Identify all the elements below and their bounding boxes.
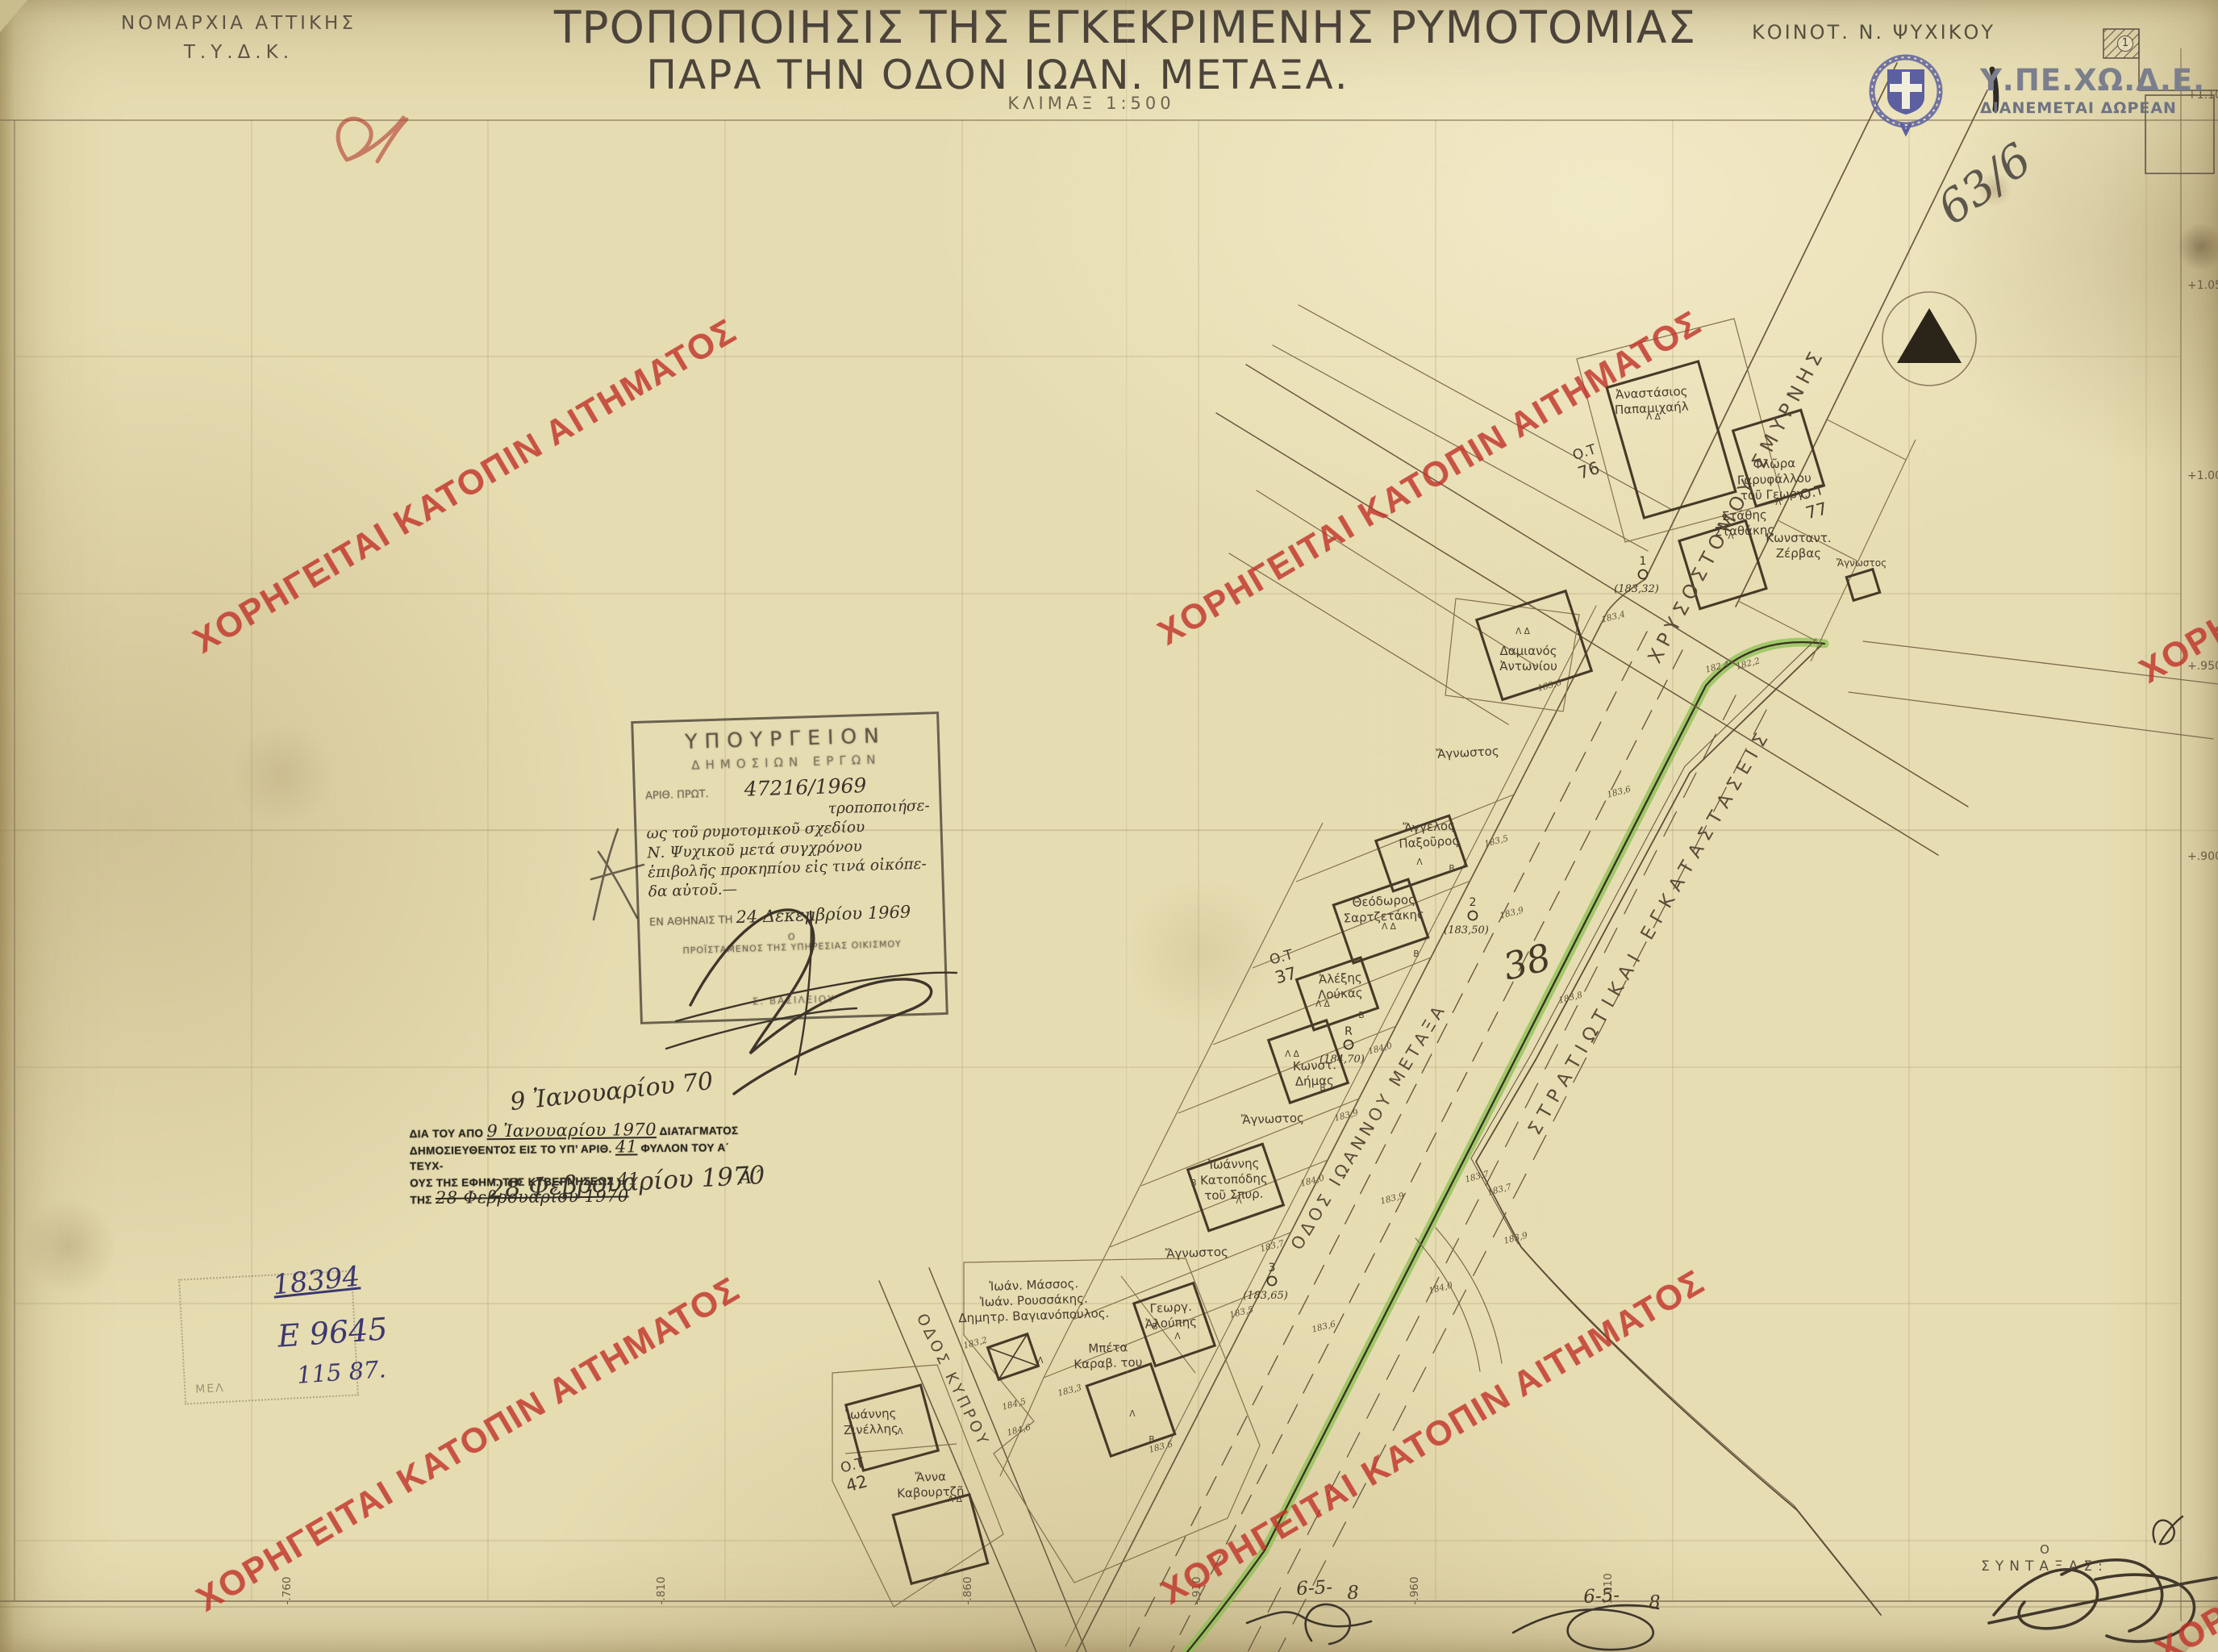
parcel-owner-label: Δαμιανός bbox=[1499, 644, 1557, 658]
survey-point-elevation: (183,50) bbox=[1444, 924, 1489, 937]
parcel-owner-label: Δήμας bbox=[1295, 1073, 1335, 1089]
block-76-boundaries bbox=[1229, 490, 1536, 724]
axis-tick-right: +.900 bbox=[2187, 850, 2218, 863]
parcel-owner-label: Μπέτα bbox=[1088, 1340, 1128, 1356]
parcel-owner-label: Παξοῦρος bbox=[1399, 833, 1460, 851]
construction-mark: Λ Δ bbox=[1382, 922, 1397, 932]
construction-mark: Β bbox=[1190, 1179, 1196, 1188]
bottom-signature-2 bbox=[1513, 1605, 1658, 1650]
axis-tick-bottom: -.860 bbox=[961, 1577, 974, 1605]
parcel-owner-label: Στάθης bbox=[1722, 507, 1767, 524]
handwritten-annotation: 8 bbox=[1649, 1592, 1661, 1614]
spot-elevation: 183,5 bbox=[1483, 833, 1509, 849]
survey-point-marker bbox=[1469, 912, 1478, 920]
survey-point-number: 2 bbox=[1470, 896, 1477, 909]
handwritten-annotation: 6-5- bbox=[1296, 1577, 1333, 1600]
parcel-owner-label: Ζινέλλης bbox=[844, 1421, 898, 1437]
survey-point-number: 1 bbox=[1640, 555, 1647, 568]
axis-tick-bottom: -.910 bbox=[1190, 1577, 1203, 1605]
east-side-road bbox=[1849, 641, 2218, 739]
spot-elevation: 184,0 bbox=[1428, 1280, 1453, 1295]
road-metaxa-smyrnis-west-edge bbox=[1077, 63, 1897, 1652]
handwritten-one-over-logo bbox=[1992, 69, 1996, 110]
survey-point-elevation: (184,70) bbox=[1320, 1053, 1365, 1066]
axis-tick-right: +1.000 bbox=[2187, 469, 2218, 482]
spot-elevation: 183,8 bbox=[1557, 990, 1583, 1005]
parcel-owner-label: Καραβ. του bbox=[1074, 1355, 1143, 1372]
survey-point-elevation: (183,32) bbox=[1614, 583, 1659, 595]
spot-elevation: 183,4 bbox=[1600, 609, 1626, 624]
spot-elevation: 183,6 bbox=[1536, 678, 1562, 693]
handwritten-annotation: 8 bbox=[1347, 1583, 1360, 1604]
spot-elevation: 184,0 bbox=[1367, 1041, 1393, 1056]
axis-tick-bottom: -.960 bbox=[1408, 1577, 1421, 1605]
parcel-owner-label: Ἄγνωστος bbox=[1241, 1111, 1304, 1128]
construction-mark: Λ bbox=[1416, 857, 1423, 867]
spot-elevation: 183,6 bbox=[1606, 784, 1632, 799]
map-canvas: +1.100+1.050+1.000+.950+.900-.760-.810-.… bbox=[0, 0, 2218, 1652]
survey-point-marker bbox=[1268, 1277, 1277, 1286]
spot-elevation: 183,6 bbox=[1311, 1319, 1336, 1334]
handwritten-annotation: 38 bbox=[1499, 935, 1555, 989]
construction-mark: Λ bbox=[1037, 1356, 1044, 1366]
bottom-signature-1 bbox=[1247, 1604, 1371, 1644]
construction-mark: Λ Δ bbox=[1285, 1049, 1300, 1059]
parcel-owner-label: Ἀλέξης bbox=[1318, 970, 1362, 987]
parcel-owner-label: Ἰωάν. Μάσσος. bbox=[989, 1276, 1078, 1294]
construction-mark: Β bbox=[1413, 949, 1419, 959]
road-kyprou-edges bbox=[879, 1268, 1086, 1652]
parcel-owner-label: Ἰωάννης bbox=[845, 1406, 897, 1422]
construction-mark: Β bbox=[1449, 864, 1454, 874]
west-chain-rear-boundary bbox=[1000, 823, 1323, 1476]
construction-mark: Β bbox=[1149, 1435, 1154, 1445]
parcel-owner-label: τοῦ Σπυρ. bbox=[1204, 1187, 1264, 1204]
pencil-cross-mark bbox=[591, 829, 644, 920]
curved-boundary-arcs bbox=[1415, 1228, 1502, 1371]
spot-elevation: 183,5 bbox=[1228, 1304, 1254, 1320]
construction-mark: Λ bbox=[897, 1427, 903, 1437]
construction-mark: Λ bbox=[1775, 498, 1782, 507]
upper-street-pair bbox=[1273, 305, 1674, 551]
cross-street-south-edge bbox=[1216, 413, 1938, 855]
street-name-label: ΟΔΟΣ ΚΥΠΡΟΥ bbox=[913, 1311, 993, 1450]
axis-tick-right: +.950 bbox=[2187, 660, 2218, 673]
parcel-owner-label: Ζέρβας bbox=[1776, 546, 1821, 561]
street-name-label: ΟΔΟΣ ΙΩΑΝΝΟΥ ΜΕΤΑΞΑ bbox=[1287, 999, 1450, 1254]
parcel-owner-label: Ἰωάννης bbox=[1208, 1156, 1260, 1172]
construction-mark: Β bbox=[1152, 1322, 1157, 1332]
parcel-owner-label: Ἀντωνίου bbox=[1499, 659, 1557, 674]
construction-mark: Β bbox=[1358, 1011, 1364, 1020]
construction-mark: Λ bbox=[1728, 532, 1734, 541]
construction-mark: Λ Δ bbox=[1646, 412, 1661, 422]
parcel-owner-label: Ἄγνωστος bbox=[1837, 557, 1887, 569]
spot-elevation: 184,6 bbox=[1006, 1422, 1032, 1437]
road-metaxa-centerline-dashed-2 bbox=[1171, 650, 1682, 1652]
spot-elevation: 183,9 bbox=[1379, 1191, 1405, 1206]
coat-of-arms-emblem bbox=[1872, 57, 1940, 133]
north-arrow bbox=[1882, 292, 1976, 386]
building-footprint bbox=[893, 1495, 987, 1583]
spot-elevation: 183,9 bbox=[1503, 1230, 1528, 1245]
sheet-frame bbox=[0, 48, 2218, 1621]
handwritten-annotation: 6-5- bbox=[1583, 1585, 1620, 1608]
survey-point-number: R bbox=[1345, 1025, 1353, 1038]
small-initial-scribble bbox=[2153, 1516, 2183, 1544]
construction-mark: Λ Δ bbox=[1515, 627, 1531, 636]
parcel-owner-label: Ἄννα bbox=[915, 1469, 946, 1484]
parcel-owner-label: Γαρυφάλλου bbox=[1737, 470, 1812, 487]
construction-mark: Λ bbox=[1129, 1409, 1136, 1419]
spot-elevation: 183,9 bbox=[1499, 905, 1524, 920]
road-network bbox=[879, 63, 2218, 1652]
scanned-map-sheet: +1.100+1.050+1.000+.950+.900-.760-.810-.… bbox=[0, 0, 2218, 1652]
cross-street-north-edge bbox=[1246, 365, 1968, 807]
parcel-owner-label: Φλῶρα bbox=[1753, 456, 1795, 472]
axis-tick-bottom: -.810 bbox=[655, 1577, 668, 1605]
spot-elevation: 183,9 bbox=[1333, 1108, 1359, 1123]
parcel-owner-label: Ἄγνωστος bbox=[1165, 1245, 1228, 1262]
construction-mark: Λ Δ bbox=[1315, 999, 1331, 1009]
road-metaxa-centerline-dashed-1 bbox=[1127, 632, 1647, 1652]
construction-mark: Λ bbox=[1174, 1332, 1181, 1341]
spot-elevation: 183,3 bbox=[1057, 1383, 1082, 1398]
parcel-owner-label: τοῦ Γεωργ. bbox=[1741, 486, 1808, 503]
construction-mark: Λ bbox=[1236, 1196, 1242, 1206]
survey-point-marker bbox=[1639, 570, 1648, 579]
building-footprint bbox=[1846, 569, 1879, 601]
ink-scribbles bbox=[338, 69, 2216, 1650]
axis-tick-right: +1.050 bbox=[2187, 279, 2218, 292]
construction-mark: Β bbox=[1320, 1083, 1325, 1093]
parcel-owner-label: Ἄγνωστος bbox=[1436, 744, 1499, 761]
survey-point-elevation: (183,65) bbox=[1243, 1290, 1288, 1302]
coordinate-grid bbox=[15, 120, 2181, 1601]
axis-tick-bottom: -.760 bbox=[281, 1577, 294, 1605]
parcel-owner-label: Κωνσταντ. bbox=[1766, 531, 1831, 545]
spot-elevation: 183,7 bbox=[1486, 1182, 1512, 1197]
survey-point-number: 3 bbox=[1269, 1262, 1276, 1274]
spot-elevation: 184,5 bbox=[1001, 1396, 1027, 1412]
axis-tick-right: +1.100 bbox=[2187, 89, 2218, 102]
parcel-owner-label: Γεωργ. bbox=[1149, 1299, 1192, 1316]
parcel-owner-label: Ἄγγελος bbox=[1403, 818, 1455, 835]
red-pencil-scribble bbox=[338, 118, 406, 161]
construction-mark: Λ Δ bbox=[948, 1495, 963, 1504]
parcel-owner-label: Κατοπόδης bbox=[1200, 1171, 1268, 1188]
